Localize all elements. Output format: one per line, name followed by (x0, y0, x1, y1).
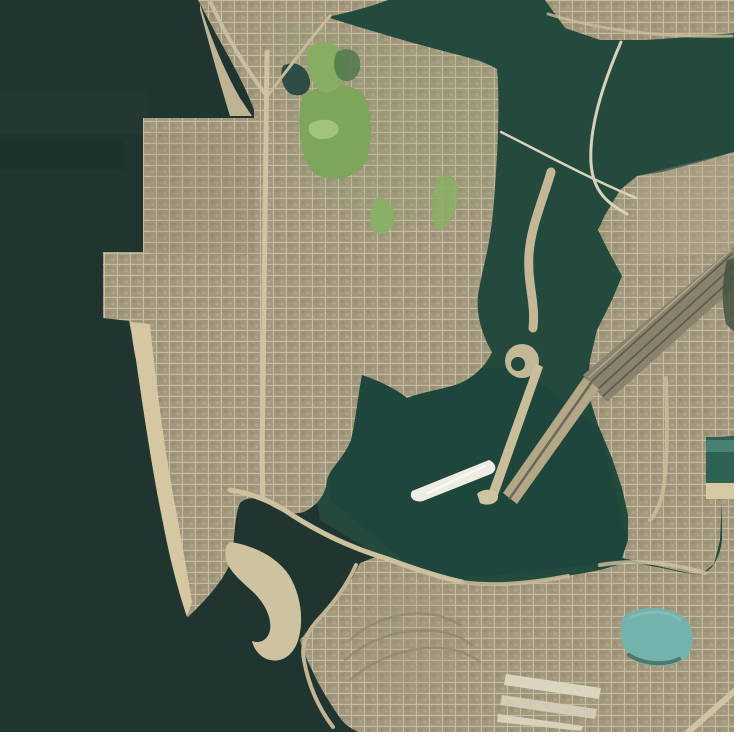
satellite-image[interactable] (0, 0, 740, 738)
estate-rings-light (352, 584, 464, 696)
park-woods (334, 49, 360, 81)
sea-current-band-1 (0, 92, 150, 134)
dock-basin-sheen (706, 440, 734, 452)
map-layers (0, 0, 740, 738)
satellite-map-stage (0, 0, 740, 738)
margin-right (734, 0, 740, 738)
dock-sand (706, 483, 734, 499)
park-meadow (309, 120, 339, 139)
margin-bottom (0, 732, 740, 738)
downtown-shade (150, 130, 255, 255)
sea-current-band-2 (0, 140, 125, 170)
causeway-bulb-lagoon (511, 357, 525, 371)
